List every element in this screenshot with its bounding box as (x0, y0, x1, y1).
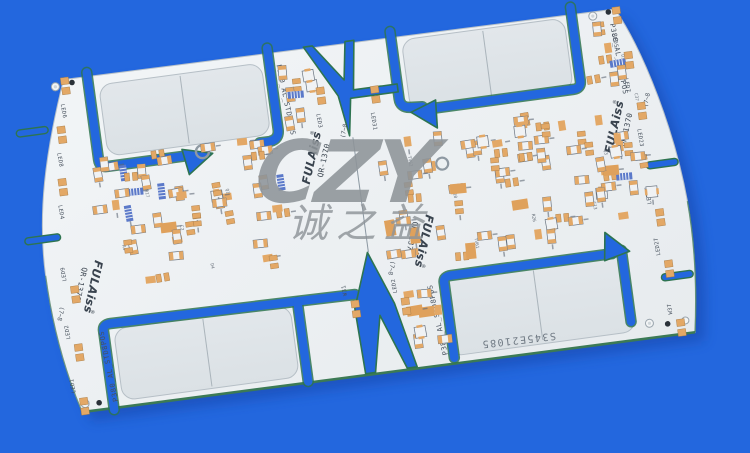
pcb-photo-svg: P380_AL_STD8POS P380_AL_STD8POS P380_AL_… (0, 0, 750, 453)
pcb-photo: P380_AL_STD8POS P380_AL_STD8POS P380_AL_… (0, 0, 750, 453)
edge-notch (16, 126, 49, 137)
pcb-board-group: P380_AL_STD8POS P380_AL_STD8POS P380_AL_… (4, 0, 715, 430)
